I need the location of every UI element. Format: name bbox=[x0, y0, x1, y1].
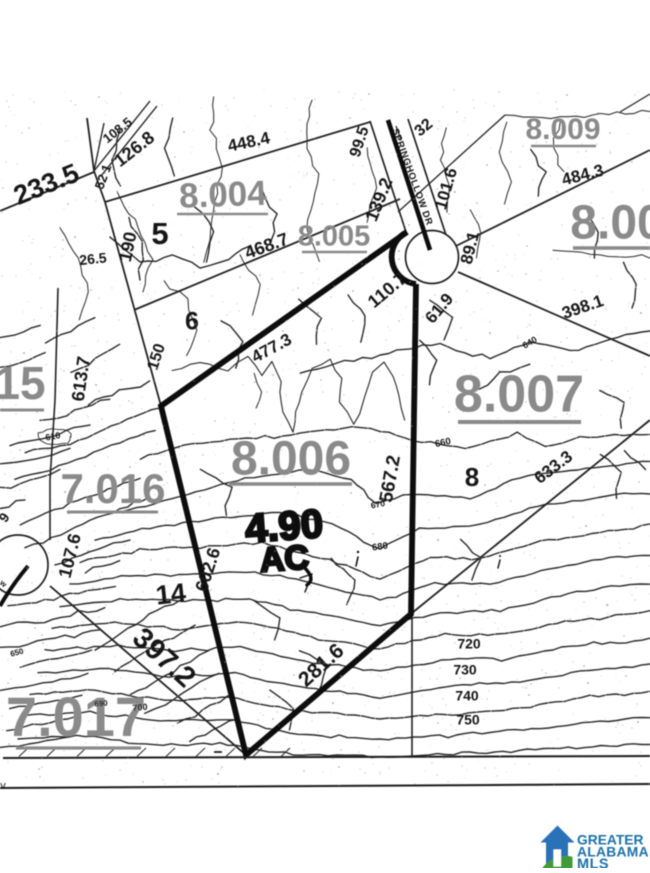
svg-text:14: 14 bbox=[154, 578, 187, 611]
svg-text:8.009: 8.009 bbox=[525, 113, 600, 146]
svg-text:690: 690 bbox=[94, 698, 109, 708]
svg-text:5: 5 bbox=[151, 216, 168, 251]
svg-text:8.004: 8.004 bbox=[178, 174, 267, 216]
svg-text:15: 15 bbox=[0, 357, 46, 409]
svg-text:750: 750 bbox=[456, 712, 480, 728]
svg-text:740: 740 bbox=[455, 688, 479, 704]
svg-text:680: 680 bbox=[371, 540, 388, 553]
svg-text:720: 720 bbox=[457, 636, 481, 652]
svg-text:7.017: 7.017 bbox=[6, 685, 146, 748]
svg-text:v: v bbox=[0, 780, 6, 792]
svg-text:6: 6 bbox=[185, 308, 199, 336]
svg-text:AC: AC bbox=[259, 538, 311, 579]
svg-text:8.007: 8.007 bbox=[454, 366, 584, 424]
svg-text:8.00: 8.00 bbox=[570, 197, 650, 250]
svg-text:700: 700 bbox=[132, 702, 148, 713]
svg-text:8: 8 bbox=[465, 462, 479, 492]
svg-text:MLS: MLS bbox=[577, 857, 609, 869]
svg-text:8.005: 8.005 bbox=[298, 221, 371, 253]
svg-text:8.006: 8.006 bbox=[231, 433, 351, 486]
svg-text:26.5: 26.5 bbox=[78, 249, 107, 268]
svg-text:730: 730 bbox=[453, 662, 477, 678]
